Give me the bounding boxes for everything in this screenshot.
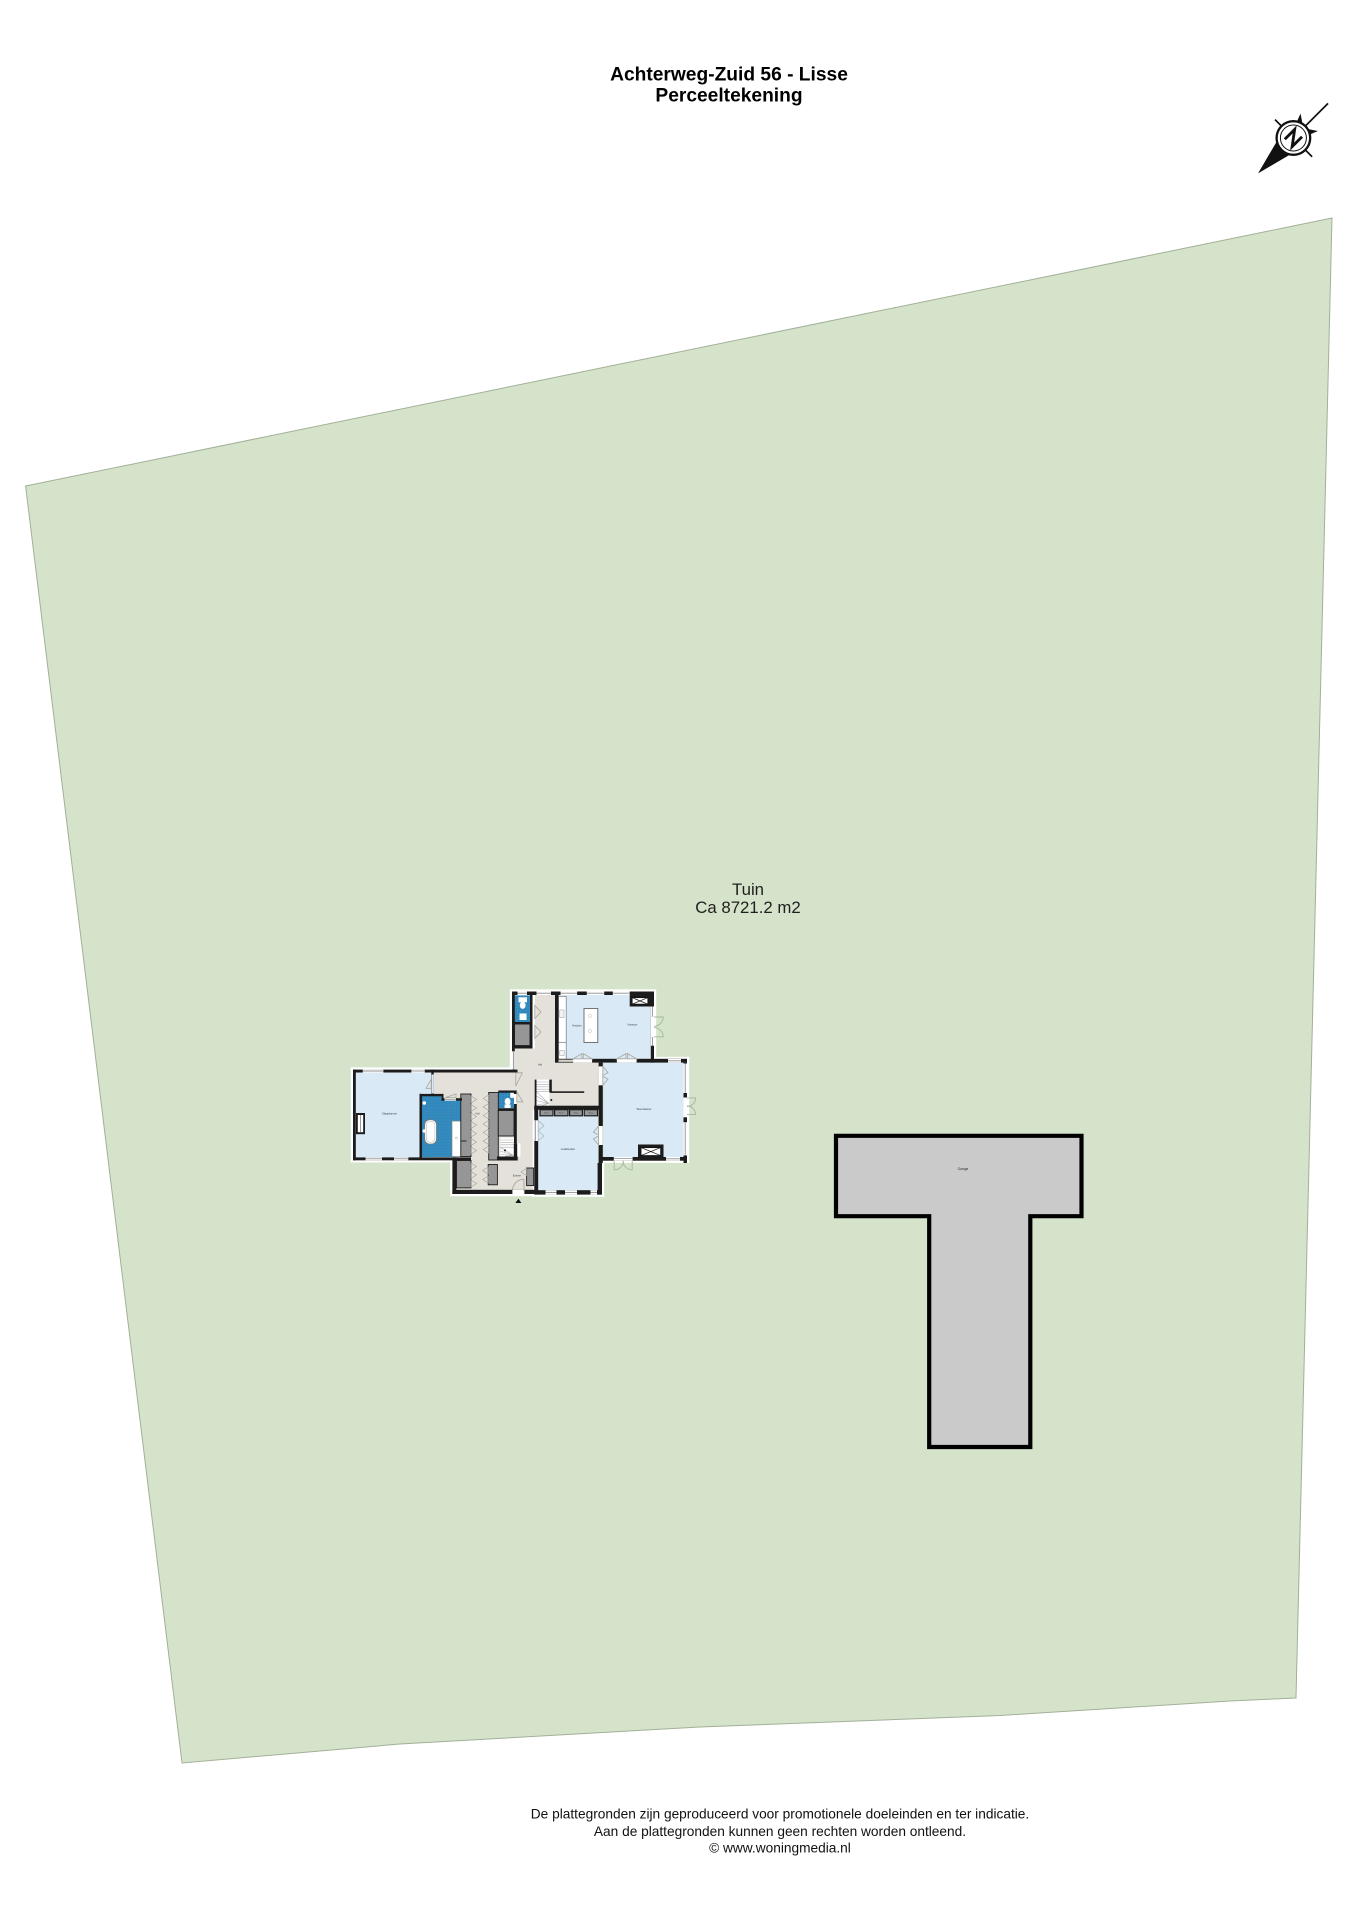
svg-text:Kast: Kast xyxy=(544,1112,549,1115)
svg-text:© www.woningmedia.nl: © www.woningmedia.nl xyxy=(709,1841,851,1856)
svg-text:Hal: Hal xyxy=(538,1063,542,1067)
svg-text:Achterweg-Zuid 56 - Lisse: Achterweg-Zuid 56 - Lisse xyxy=(610,65,848,86)
svg-text:Keuken: Keuken xyxy=(572,1024,582,1028)
svg-text:De plattegronden zijn geproduc: De plattegronden zijn geproduceerd voor … xyxy=(531,1807,1029,1822)
svg-text:Kast: Kast xyxy=(559,1112,564,1115)
svg-text:Entree: Entree xyxy=(513,1174,522,1178)
svg-text:Leefkeuken: Leefkeuken xyxy=(561,1147,576,1151)
svg-text:Kast: Kast xyxy=(589,1112,594,1115)
svg-text:Slaapkamer: Slaapkamer xyxy=(382,1112,397,1116)
svg-text:Kantoor: Kantoor xyxy=(628,1023,638,1027)
svg-text:Perceeltekening: Perceeltekening xyxy=(655,85,802,106)
svg-text:Kast: Kast xyxy=(574,1112,579,1115)
svg-text:Hal: Hal xyxy=(476,1112,480,1116)
svg-text:Garage: Garage xyxy=(958,1167,969,1171)
svg-text:Woonkamer: Woonkamer xyxy=(636,1107,651,1111)
svg-text:Tuin: Tuin xyxy=(732,880,764,899)
svg-text:Aan de plattegronden kunnen ge: Aan de plattegronden kunnen geen rechten… xyxy=(594,1824,966,1839)
svg-text:Ca 8721.2 m2: Ca 8721.2 m2 xyxy=(695,898,800,917)
